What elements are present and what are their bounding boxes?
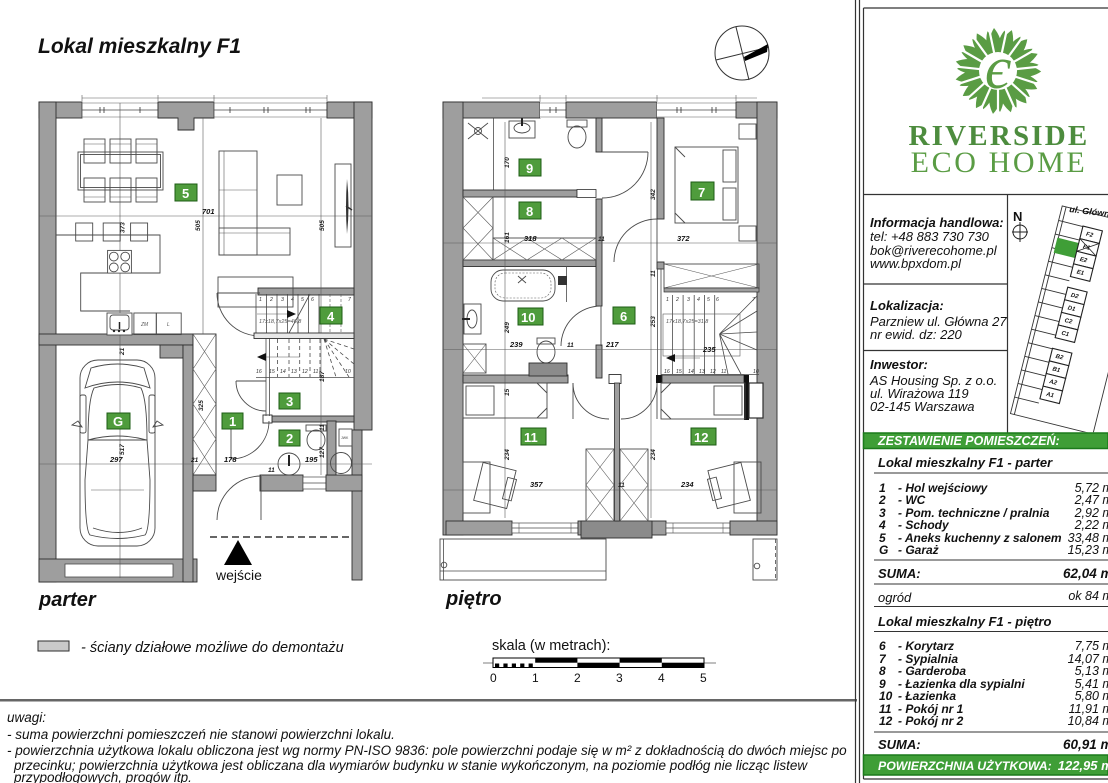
svg-text:- Łazienka: - Łazienka (898, 689, 956, 703)
svg-text:piętro: piętro (445, 588, 502, 610)
svg-text:10,84 m²: 10,84 m² (1068, 714, 1108, 728)
svg-text:297: 297 (109, 455, 123, 464)
svg-text:10: 10 (345, 369, 351, 375)
svg-text:60,91 m²: 60,91 m² (1063, 737, 1108, 752)
svg-text:253: 253 (650, 316, 657, 328)
svg-text:12: 12 (879, 714, 893, 728)
svg-text:2: 2 (878, 493, 886, 507)
svg-text:tel: +48 883 730 730: tel: +48 883 730 730 (870, 229, 990, 244)
svg-text:5,80 m²: 5,80 m² (1075, 689, 1108, 703)
svg-text:8: 8 (879, 664, 886, 678)
svg-text:Informacja handlowa:: Informacja handlowa: (870, 215, 1004, 230)
svg-text:13: 13 (291, 369, 297, 375)
svg-text:- Schody: - Schody (898, 518, 950, 532)
svg-text:249: 249 (504, 322, 511, 334)
svg-text:161: 161 (504, 232, 511, 243)
svg-text:15,23 m²: 15,23 m² (1068, 543, 1108, 557)
svg-text:14: 14 (280, 369, 286, 375)
svg-text:6: 6 (879, 639, 886, 653)
svg-text:10: 10 (879, 689, 893, 703)
svg-text:187: 187 (319, 371, 326, 382)
svg-text:127: 127 (319, 447, 326, 458)
svg-text:4: 4 (291, 297, 294, 303)
svg-text:217: 217 (605, 340, 619, 349)
svg-text:- WC: - WC (898, 493, 926, 507)
svg-text:234: 234 (504, 449, 511, 461)
svg-text:przypodłogowych, progów itp.: przypodłogowych, progów itp. (13, 770, 192, 783)
svg-text:7,75 m²: 7,75 m² (1075, 639, 1108, 653)
svg-text:Lokal mieszkalny F1 - piętro: Lokal mieszkalny F1 - piętro (878, 614, 1051, 629)
svg-text:9: 9 (526, 161, 533, 176)
svg-text:Lokal mieszkalny F1 - parter: Lokal mieszkalny F1 - parter (878, 455, 1053, 470)
svg-text:8: 8 (526, 204, 533, 219)
svg-text:- Pokój nr 2: - Pokój nr 2 (898, 714, 964, 728)
svg-text:11: 11 (618, 482, 625, 489)
svg-text:- ściany działowe możliwe do d: - ściany działowe możliwe do demontażu (81, 640, 344, 656)
svg-text:318: 318 (524, 234, 537, 243)
svg-text:2: 2 (286, 431, 293, 446)
svg-text:11: 11 (268, 467, 275, 474)
svg-text:uwagi:: uwagi: (7, 710, 46, 725)
svg-text:3: 3 (281, 297, 284, 303)
svg-text:5: 5 (182, 186, 189, 201)
svg-text:357: 357 (530, 480, 543, 489)
svg-text:325: 325 (198, 400, 205, 411)
svg-text:- powierzchnia użytkowa lokalu: - powierzchnia użytkowa lokalu obliczona… (7, 743, 847, 758)
svg-text:234: 234 (680, 480, 694, 489)
svg-text:1: 1 (532, 671, 539, 685)
svg-text:2,47 m²: 2,47 m² (1074, 493, 1108, 507)
svg-text:wejście: wejście (215, 567, 262, 583)
svg-text:16: 16 (256, 369, 262, 375)
svg-text:JWK: JWK (341, 436, 349, 440)
svg-text:701: 701 (202, 207, 215, 216)
svg-text:4: 4 (658, 671, 665, 685)
svg-text:7: 7 (698, 185, 705, 200)
svg-text:372: 372 (677, 234, 690, 243)
svg-text:10: 10 (521, 310, 535, 325)
svg-text:21: 21 (190, 457, 199, 464)
svg-text:SUMA:: SUMA: (878, 566, 921, 581)
svg-text:5,13 m²: 5,13 m² (1075, 664, 1108, 678)
svg-text:15: 15 (504, 388, 511, 396)
svg-text:6: 6 (620, 309, 627, 324)
svg-text:ZM: ZM (140, 322, 149, 328)
svg-text:nr ewid. dz: 220: nr ewid. dz: 220 (870, 327, 963, 342)
svg-text:ECO HOME: ECO HOME (911, 146, 1088, 179)
svg-text:62,04 m²: 62,04 m² (1063, 566, 1108, 581)
svg-text:170: 170 (504, 157, 511, 168)
svg-text:ZESTAWIENIE POMIESZCZEŃ:: ZESTAWIENIE POMIESZCZEŃ: (877, 433, 1060, 448)
svg-text:373: 373 (120, 222, 127, 233)
svg-text:1: 1 (229, 414, 236, 429)
svg-text:4: 4 (878, 518, 886, 532)
svg-text:235: 235 (702, 345, 716, 354)
svg-text:6: 6 (311, 297, 314, 303)
svg-text:5: 5 (301, 297, 304, 303)
svg-text:N: N (1013, 209, 1022, 224)
svg-text:POWIERZCHNIA UŻYTKOWA:: POWIERZCHNIA UŻYTKOWA: (878, 758, 1052, 773)
svg-text:21: 21 (119, 347, 126, 356)
svg-text:11: 11 (567, 342, 574, 349)
svg-text:Inwestor:: Inwestor: (870, 357, 928, 372)
svg-text:- suma powierzchni pomieszczeń: - suma powierzchni pomieszczeń nie stano… (7, 727, 395, 742)
svg-text:ok 84 m²: ok 84 m² (1068, 589, 1108, 603)
svg-text:G: G (113, 414, 123, 429)
svg-text:SUMA:: SUMA: (878, 737, 921, 752)
svg-text:15: 15 (269, 369, 275, 375)
svg-text:1: 1 (666, 297, 669, 303)
svg-text:234: 234 (650, 449, 657, 461)
svg-text:www.bpxdom.pl: www.bpxdom.pl (870, 256, 962, 271)
svg-text:11: 11 (313, 369, 318, 375)
svg-text:11: 11 (524, 430, 538, 445)
svg-text:1: 1 (259, 297, 262, 303)
svg-text:2,22 m²: 2,22 m² (1074, 518, 1108, 532)
svg-text:2: 2 (675, 297, 679, 303)
svg-text:2: 2 (574, 671, 581, 685)
svg-text:12: 12 (302, 369, 308, 375)
svg-text:- Korytarz: - Korytarz (898, 639, 954, 653)
svg-text:11: 11 (598, 236, 605, 243)
svg-text:178: 178 (224, 455, 237, 464)
svg-text:3: 3 (286, 394, 293, 409)
svg-text:11: 11 (319, 424, 326, 431)
svg-text:4: 4 (327, 309, 335, 324)
svg-text:3: 3 (687, 297, 690, 303)
svg-text:17x18,7x25=31,8: 17x18,7x25=31,8 (666, 319, 709, 325)
svg-text:02-145 Warszawa: 02-145 Warszawa (870, 399, 975, 414)
svg-text:2: 2 (269, 297, 273, 303)
svg-text:122,95 m²: 122,95 m² (1058, 758, 1108, 773)
svg-text:505: 505 (195, 220, 202, 231)
svg-text:5: 5 (707, 297, 710, 303)
svg-text:3: 3 (616, 671, 623, 685)
svg-text:0: 0 (490, 671, 497, 685)
svg-text:11: 11 (650, 270, 657, 277)
svg-text:195: 195 (305, 455, 318, 464)
svg-text:- Garderoba: - Garderoba (898, 664, 966, 678)
svg-text:Lokalizacja:: Lokalizacja: (870, 298, 944, 313)
svg-text:17x18,7x25=46,8: 17x18,7x25=46,8 (259, 319, 302, 325)
svg-text:12: 12 (694, 430, 708, 445)
svg-text:L: L (167, 322, 170, 328)
svg-text:skala (w metrach):: skala (w metrach): (492, 638, 610, 654)
svg-text:- Garaż: - Garaż (898, 543, 939, 557)
svg-text:є: є (985, 35, 1011, 101)
svg-text:4: 4 (697, 297, 700, 303)
svg-text:6: 6 (716, 297, 719, 303)
svg-text:parter: parter (38, 589, 97, 611)
svg-text:5: 5 (700, 671, 707, 685)
svg-text:505: 505 (319, 220, 326, 231)
svg-text:ogród: ogród (878, 590, 912, 605)
svg-text:517: 517 (119, 444, 126, 455)
svg-text:239: 239 (509, 340, 523, 349)
svg-text:342: 342 (650, 189, 657, 200)
svg-text:G: G (879, 543, 888, 557)
svg-text:Lokal mieszkalny F1: Lokal mieszkalny F1 (38, 35, 241, 58)
